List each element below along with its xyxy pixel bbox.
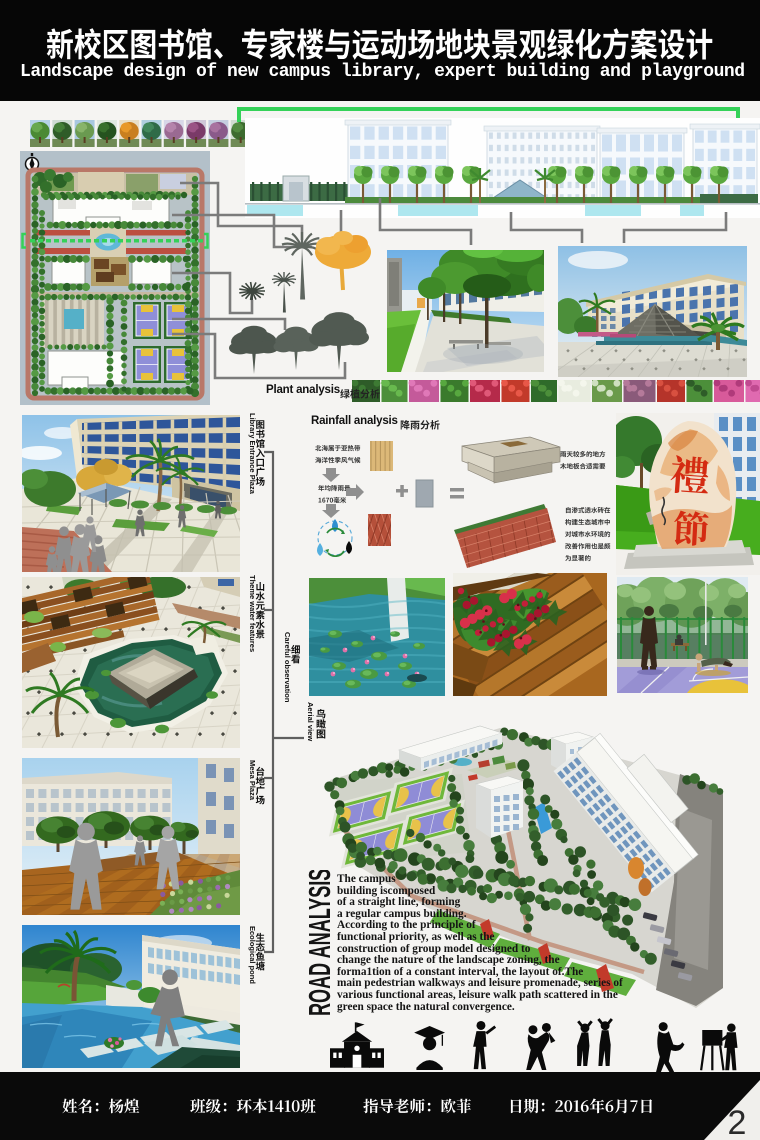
svg-text:Ecological pond: Ecological pond xyxy=(248,926,257,984)
svg-text:Careful observation: Careful observation xyxy=(283,632,292,703)
svg-text:2: 2 xyxy=(728,1104,747,1140)
svg-text:Mesa Plaza: Mesa Plaza xyxy=(248,760,257,801)
svg-text:ROAD ANALYSIS: ROAD ANALYSIS xyxy=(303,870,337,1016)
